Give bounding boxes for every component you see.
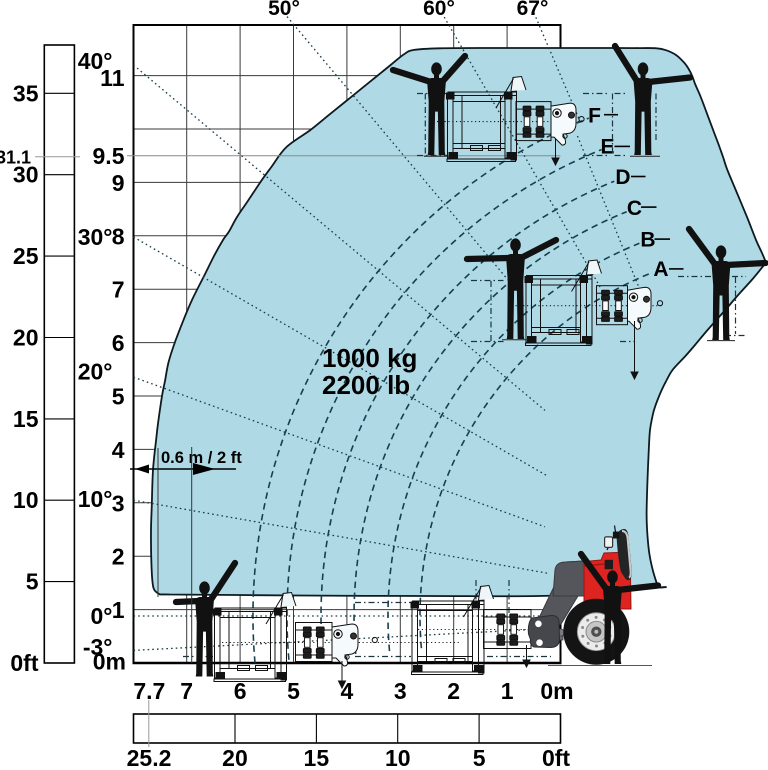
svg-text:6: 6 <box>234 678 247 704</box>
svg-text:30°: 30° <box>78 224 113 250</box>
svg-text:9.5: 9.5 <box>93 143 125 169</box>
svg-text:67°: 67° <box>517 0 549 20</box>
svg-text:6: 6 <box>112 330 125 356</box>
svg-text:20°: 20° <box>78 359 113 385</box>
svg-text:8: 8 <box>112 223 125 249</box>
svg-text:15: 15 <box>304 745 330 770</box>
svg-text:2: 2 <box>447 678 460 704</box>
svg-text:25.2: 25.2 <box>127 745 172 770</box>
svg-text:2200 lb: 2200 lb <box>322 370 410 400</box>
svg-text:B: B <box>640 229 655 252</box>
svg-text:0ft: 0ft <box>542 745 570 770</box>
svg-text:60°: 60° <box>423 0 455 20</box>
svg-text:-3°: -3° <box>83 634 113 660</box>
svg-text:40°: 40° <box>78 48 113 74</box>
svg-text:10°: 10° <box>78 486 113 512</box>
svg-text:1: 1 <box>501 678 514 704</box>
svg-text:A: A <box>653 258 668 281</box>
svg-text:2: 2 <box>112 544 125 570</box>
svg-text:20: 20 <box>13 324 39 350</box>
svg-text:0.6 m / 2 ft: 0.6 m / 2 ft <box>161 449 242 467</box>
svg-text:1: 1 <box>112 597 125 623</box>
svg-text:15: 15 <box>13 406 39 432</box>
svg-text:5: 5 <box>112 384 125 410</box>
svg-text:1000 kg: 1000 kg <box>322 343 417 373</box>
svg-text:10: 10 <box>13 487 39 513</box>
svg-text:10: 10 <box>385 745 411 770</box>
svg-text:20: 20 <box>222 745 248 770</box>
svg-text:31.1: 31.1 <box>0 147 31 167</box>
svg-text:4: 4 <box>112 437 125 463</box>
svg-text:3: 3 <box>112 490 125 516</box>
svg-text:50°: 50° <box>268 0 300 20</box>
svg-text:D: D <box>615 166 630 189</box>
svg-text:7.7: 7.7 <box>133 678 165 704</box>
svg-text:7: 7 <box>180 678 193 704</box>
svg-text:7: 7 <box>112 277 125 303</box>
svg-text:3: 3 <box>394 678 407 704</box>
svg-text:0°: 0° <box>91 603 113 629</box>
svg-text:25: 25 <box>13 243 39 269</box>
svg-text:35: 35 <box>13 80 39 106</box>
svg-text:0ft: 0ft <box>10 650 38 676</box>
svg-text:9: 9 <box>112 170 125 196</box>
svg-text:C: C <box>627 197 642 220</box>
svg-text:5: 5 <box>473 745 486 770</box>
svg-text:0m: 0m <box>540 678 573 704</box>
svg-text:4: 4 <box>341 678 354 704</box>
svg-text:F: F <box>588 105 601 128</box>
svg-text:5: 5 <box>26 569 39 595</box>
svg-text:5: 5 <box>287 678 300 704</box>
